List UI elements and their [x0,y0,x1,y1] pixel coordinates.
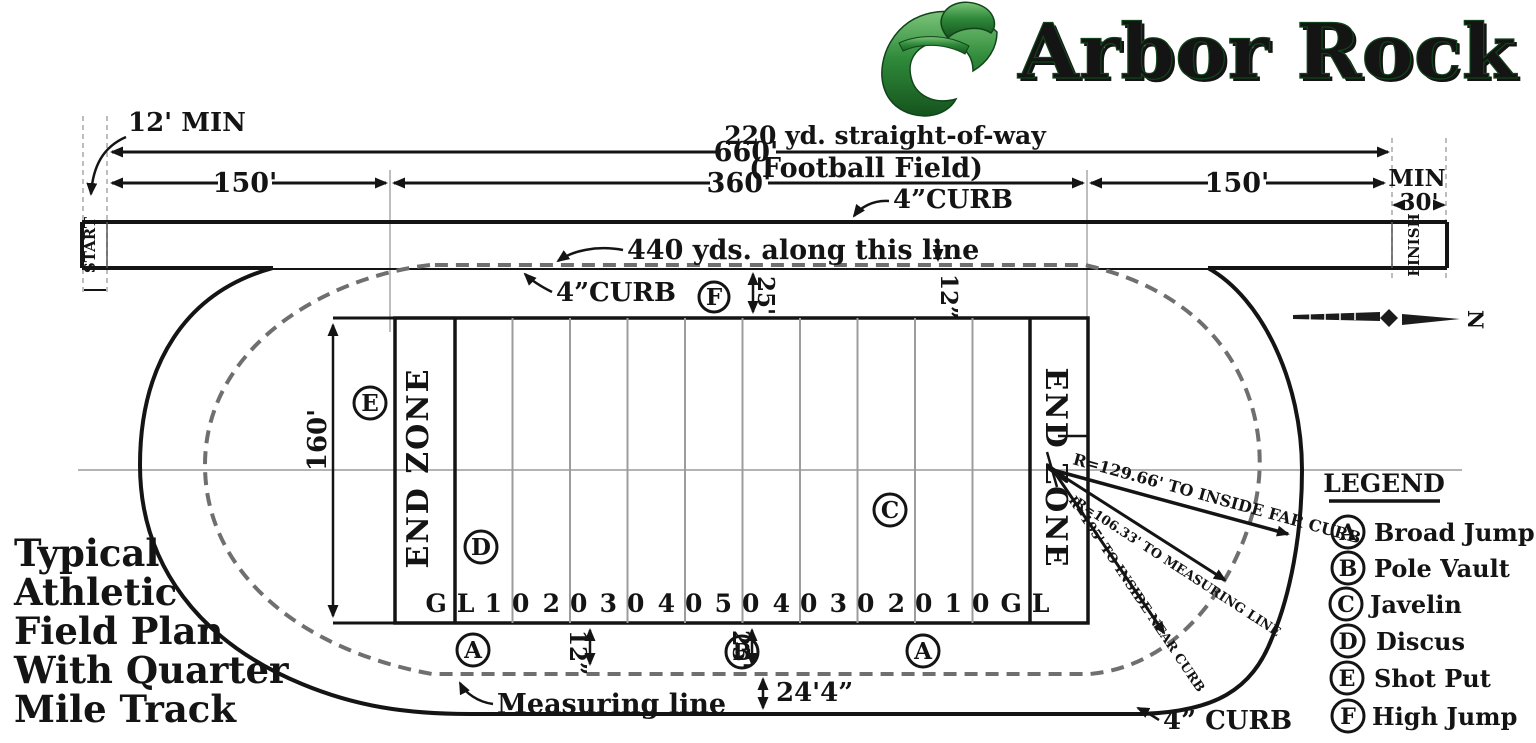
svg-text:40: 40 [773,589,828,618]
dim-30-label: 30' [1399,189,1438,216]
svg-text:With Quarter: With Quarter [13,648,289,692]
dim-360-label: 360' [707,168,772,199]
svg-text:30: 30 [600,589,655,618]
svg-text:Field Plan: Field Plan [14,609,224,653]
svg-text:A: A [913,638,933,665]
marker-discus: D [465,531,497,563]
straight-of-way-label: 220 yd. straight-of-way [724,121,1047,150]
svg-text:20: 20 [888,589,943,618]
measuring-line-label: Measuring line [497,689,726,720]
svg-text:40: 40 [658,589,713,618]
plan-title: Typical Athletic Field Plan With Quarter… [13,531,289,731]
marker-broad-jump-right: A [907,635,939,667]
legend-item: D Discus [1332,625,1465,657]
legend-item: E Shot Put [1331,662,1491,694]
legend-item: A Broad Jump [1332,516,1535,548]
curb-top-label: 4”CURB [893,185,1013,215]
football-field-label: (Football Field) [749,153,983,184]
legend: LEGEND A Broad Jump B Pole Vault C Javel… [1323,469,1534,732]
marker-javelin: C [874,494,906,526]
legend-item: F High Jump [1332,700,1517,732]
marker-shot-put: E [354,387,386,419]
svg-text:E: E [361,390,379,417]
dim-150-right-label: 150' [1205,168,1270,199]
curb-bottom-label: 4” CURB [1163,706,1292,736]
yard-number-labels: GL 10 20 30 40 50 40 30 20 10 GL [426,589,1060,618]
dim-25-top: 25' [752,276,779,315]
dimension-150-right: 150' [1091,168,1384,199]
svg-text:A: A [1338,520,1357,546]
athletic-field-plan-page: 660' 220 yd. straight-of-way (Football F… [0,0,1536,743]
arbor-rock-logo: Arbor Rock Arbor Rock [882,2,1521,116]
dimension-30in-min: MIN 30' [1388,165,1445,216]
yds440-label: 440 yds. along this line [627,235,979,266]
svg-text:Broad Jump: Broad Jump [1374,518,1535,547]
marker-high-jump: F [699,282,729,312]
svg-text:Pole Vault: Pole Vault [1374,554,1510,583]
marker-broad-jump-left: A [457,634,489,666]
svg-text:F: F [1340,704,1356,730]
ram-swirl-icon [882,2,997,116]
curb-infield-label: 4”CURB [556,278,676,308]
legend-title: LEGEND [1323,469,1445,498]
svg-text:30: 30 [830,589,885,618]
end-zone-left-label: END ZONE [401,367,436,568]
svg-text:Typical: Typical [14,531,159,575]
min-label: MIN [1388,165,1445,192]
svg-text:GL: GL [1001,589,1060,618]
svg-text:High Jump: High Jump [1372,702,1517,731]
north-arrow-icon: N [1293,309,1488,329]
svg-text:Mile Track: Mile Track [14,687,237,731]
legend-item: C Javelin [1330,588,1462,620]
svg-text:10: 10 [485,589,540,618]
svg-text:20: 20 [543,589,598,618]
svg-text:50: 50 [715,589,770,618]
dim-25-bottom: 25' [727,630,754,669]
dim-12ft-min-label: 12' MIN [128,108,246,138]
svg-text:C: C [1337,592,1355,618]
dim-24-4: 24'4” [776,678,853,708]
dim-12-top: 12” [935,274,962,319]
svg-text:A: A [463,637,483,664]
svg-text:Discus: Discus [1376,627,1465,656]
svg-text:10: 10 [945,589,1000,618]
start-label: START [81,216,99,273]
svg-text:B: B [1339,556,1358,582]
dimension-12ft-min: 12' MIN [84,108,246,290]
svg-text:C: C [881,497,899,524]
svg-text:Javelin: Javelin [1368,590,1462,619]
dim-150-left-label: 150' [213,168,278,199]
end-zone-right-label: END ZONE [1038,367,1073,568]
dim-160-label: 160' [303,409,333,471]
svg-text:D: D [1338,629,1357,655]
north-label: N [1463,310,1488,329]
finish-label: FINISH [1405,213,1423,276]
dimension-150-left: 150' [112,168,386,199]
svg-text:Shot Put: Shot Put [1374,664,1491,693]
radius-dimensions: R=129.66' TO INSIDE FAR CURB R=106.33' T… [1053,450,1363,696]
svg-text:Athletic: Athletic [13,570,177,614]
logo-text: Arbor Rock [1017,7,1517,96]
svg-text:GL: GL [426,589,485,618]
field-plan-drawing: 660' 220 yd. straight-of-way (Football F… [0,0,1536,743]
legend-item: B Pole Vault [1332,552,1510,584]
svg-text:E: E [1339,666,1356,692]
dim-12-bottom: 12” [564,630,591,675]
svg-text:F: F [706,284,723,311]
small-dimensions: 25' 12” 12” 25' 24'4” [564,240,962,708]
svg-text:D: D [471,534,491,561]
